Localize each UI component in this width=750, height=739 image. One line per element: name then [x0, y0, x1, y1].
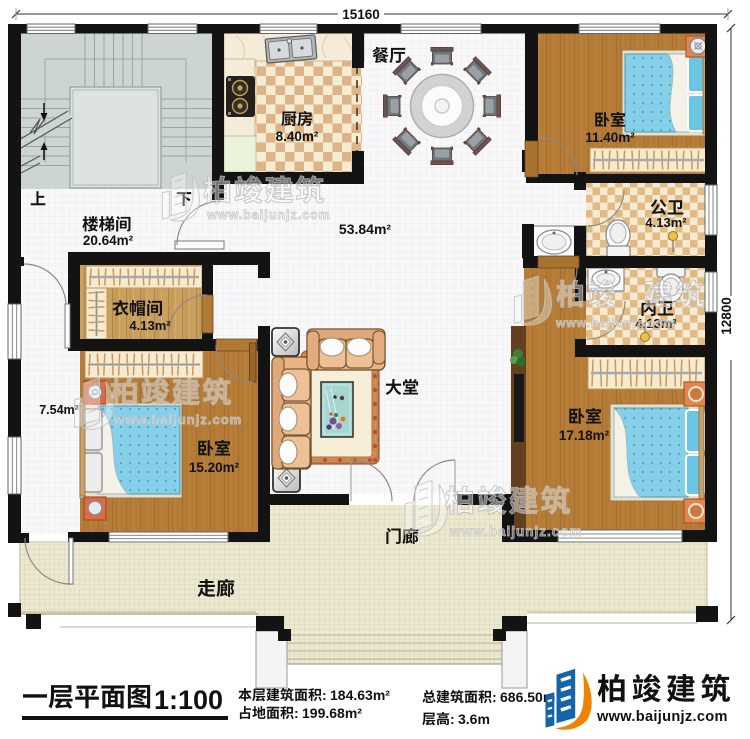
svg-text:www.baijunjz.com: www.baijunjz.com	[596, 709, 728, 725]
svg-text:3.6m: 3.6m	[458, 711, 490, 727]
svg-text:184.63m²: 184.63m²	[330, 687, 390, 703]
svg-text::: :	[322, 687, 327, 703]
svg-text:20.64m²: 20.64m²	[83, 233, 134, 248]
svg-text:15160: 15160	[342, 7, 380, 22]
svg-text:7.54m²: 7.54m²	[39, 403, 79, 417]
svg-text:11.40m²: 11.40m²	[585, 130, 635, 145]
svg-text:www.baijunjz.com: www.baijunjz.com	[113, 412, 242, 427]
svg-text:199.68m²: 199.68m²	[302, 705, 362, 721]
svg-text:www.baijunjz.com: www.baijunjz.com	[555, 316, 676, 330]
svg-text::: :	[294, 705, 299, 721]
svg-text:www.baijunjz.com: www.baijunjz.com	[449, 524, 583, 539]
svg-text:4.13m²: 4.13m²	[129, 318, 171, 333]
svg-text:8.40m²: 8.40m²	[276, 129, 319, 144]
svg-text:15.20m²: 15.20m²	[189, 460, 240, 475]
svg-text:12800: 12800	[719, 297, 734, 335]
svg-text:4.13m²: 4.13m²	[645, 215, 687, 230]
svg-text:www.baijunjz.com: www.baijunjz.com	[206, 208, 331, 222]
svg-text::: :	[450, 711, 455, 727]
svg-text::: :	[492, 689, 497, 705]
svg-text:53.84m²: 53.84m²	[339, 221, 391, 237]
svg-text:17.18m²: 17.18m²	[559, 428, 610, 443]
svg-text:1:100: 1:100	[154, 685, 223, 715]
